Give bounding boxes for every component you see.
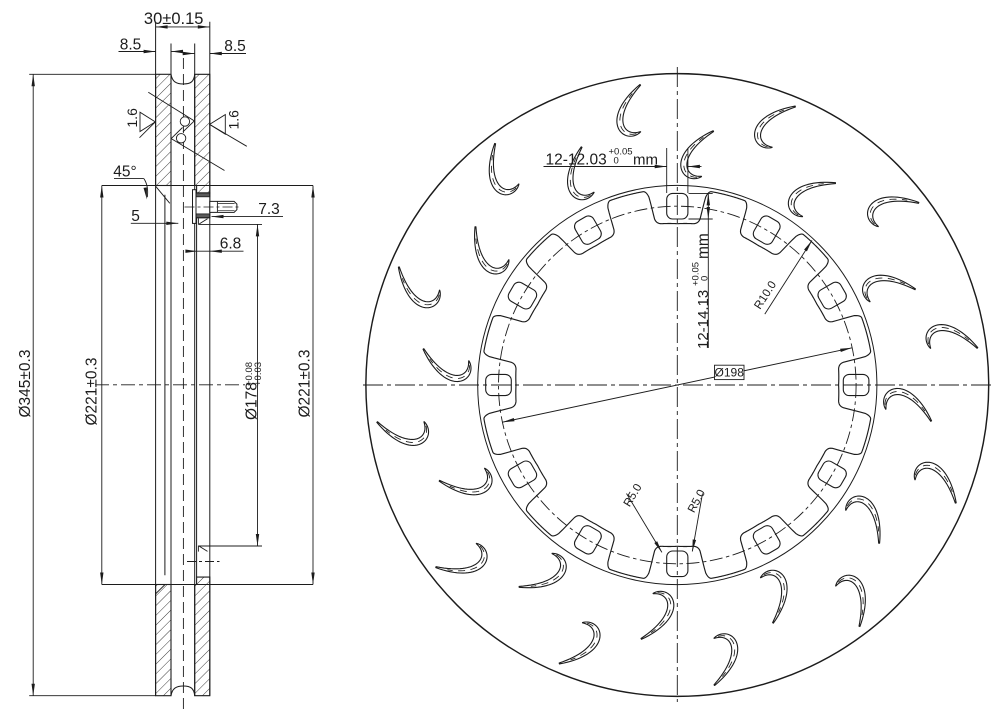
svg-text:R5.0: R5.0 — [622, 482, 645, 509]
svg-text:+0.03: +0.03 — [253, 362, 264, 386]
svg-text:Ø198: Ø198 — [715, 366, 745, 380]
svg-text:1.6: 1.6 — [124, 108, 140, 128]
svg-text:0: 0 — [700, 276, 711, 281]
svg-text:mm: mm — [633, 151, 658, 168]
svg-text:8.5: 8.5 — [224, 38, 246, 55]
svg-text:12-14.13: 12-14.13 — [695, 290, 712, 349]
svg-text:Ø221±0.3: Ø221±0.3 — [297, 350, 314, 418]
svg-text:R10.0: R10.0 — [752, 279, 779, 311]
svg-text:Ø221±0.3: Ø221±0.3 — [84, 358, 101, 426]
svg-text:Ø345±0.3: Ø345±0.3 — [17, 350, 34, 418]
svg-text:45°: 45° — [113, 164, 136, 181]
svg-text:1.6: 1.6 — [226, 110, 242, 130]
svg-text:30±0.15: 30±0.15 — [144, 10, 204, 28]
svg-text:Ø178: Ø178 — [244, 382, 261, 420]
svg-text:+0.05: +0.05 — [609, 147, 633, 158]
svg-text:6.8: 6.8 — [220, 236, 242, 253]
svg-text:mm: mm — [695, 233, 712, 259]
svg-text:7.3: 7.3 — [258, 201, 280, 218]
svg-text:0: 0 — [614, 156, 619, 167]
svg-text:8.5: 8.5 — [120, 37, 142, 54]
svg-text:12-12.03: 12-12.03 — [546, 151, 607, 168]
svg-text:R5.0: R5.0 — [686, 488, 708, 515]
svg-text:+0.05: +0.05 — [691, 262, 702, 286]
svg-text:5: 5 — [131, 208, 140, 225]
